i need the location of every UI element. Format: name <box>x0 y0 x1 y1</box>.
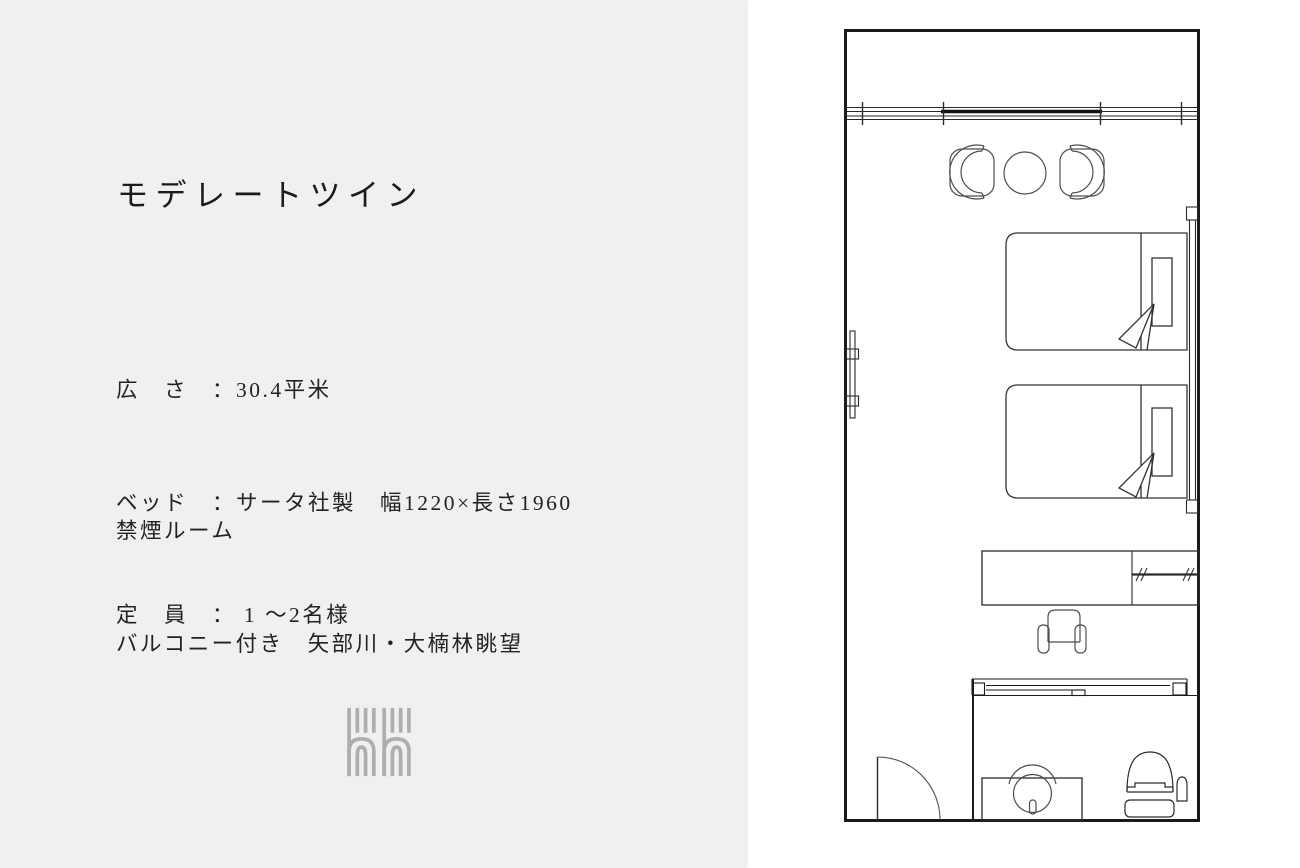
desk-counter <box>982 551 1199 605</box>
logo-stroke <box>357 747 365 776</box>
room-outline <box>846 31 1199 821</box>
bed-outline <box>1006 233 1187 350</box>
bed-outline <box>1006 385 1187 498</box>
pillow <box>1152 258 1172 326</box>
window-sliding-glass-door <box>846 102 1198 125</box>
floor-plan <box>840 24 1208 826</box>
note-non-smoking: 禁煙ルーム <box>116 513 524 551</box>
armchair <box>1038 610 1086 653</box>
round-table <box>1004 152 1046 194</box>
door-swing-arc <box>878 757 941 820</box>
logo-stroke <box>392 708 409 733</box>
toilet-bowl <box>1127 752 1173 792</box>
washbasin <box>982 765 1082 820</box>
lounge-chair-left <box>950 145 994 199</box>
room-title: モデレートツイン <box>117 170 425 215</box>
logo-stroke <box>357 708 374 733</box>
logo-stroke <box>349 739 374 776</box>
headboard-panel <box>1187 207 1198 513</box>
bathroom <box>972 679 1199 820</box>
toilet <box>1125 752 1187 817</box>
room-detail-section: モデレートツイン 広 さ ：30.4平米 ベッド ：サータ社製 幅1220×長さ… <box>0 0 1300 868</box>
twin-bed-lower <box>1006 385 1187 498</box>
pillow <box>1152 408 1172 476</box>
room-notes: 禁煙ルーム バルコニー付き 矢部川・大楠林眺望 <box>116 438 524 738</box>
basin-bowl <box>1014 775 1052 813</box>
hotel-logo-icon <box>347 707 411 777</box>
window-mullion-ticks <box>863 102 1182 125</box>
toilet-side-unit <box>1177 777 1187 801</box>
info-panel: モデレートツイン 広 さ ：30.4平米 ベッド ：サータ社製 幅1220×長さ… <box>0 0 748 868</box>
bathroom-sliding-door <box>972 679 1199 696</box>
logo-stroke <box>392 747 400 776</box>
twin-bed-upper <box>1006 233 1187 350</box>
entrance-door <box>878 757 941 820</box>
logo-stroke <box>384 739 409 776</box>
spec-line-size: 広 さ ：30.4平米 <box>116 372 573 410</box>
wall-mirror <box>847 331 859 418</box>
toilet-seat <box>1127 783 1173 792</box>
lounge-chair-right <box>1060 145 1104 199</box>
note-balcony-view: バルコニー付き 矢部川・大楠林眺望 <box>116 626 524 664</box>
toilet-tank <box>1125 800 1174 817</box>
